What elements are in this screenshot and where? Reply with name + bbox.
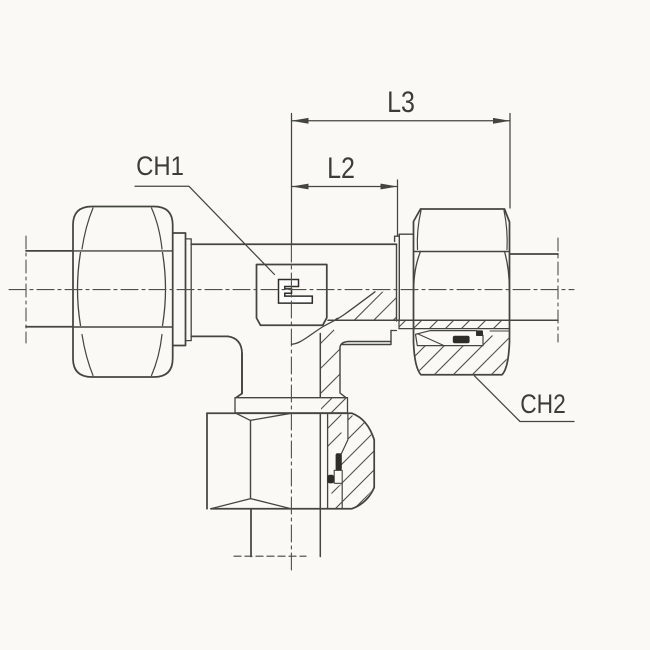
svg-text:L2: L2 (327, 151, 355, 185)
svg-text:L3: L3 (387, 85, 415, 119)
svg-text:CH2: CH2 (520, 390, 566, 419)
svg-text:CH1: CH1 (136, 151, 184, 181)
